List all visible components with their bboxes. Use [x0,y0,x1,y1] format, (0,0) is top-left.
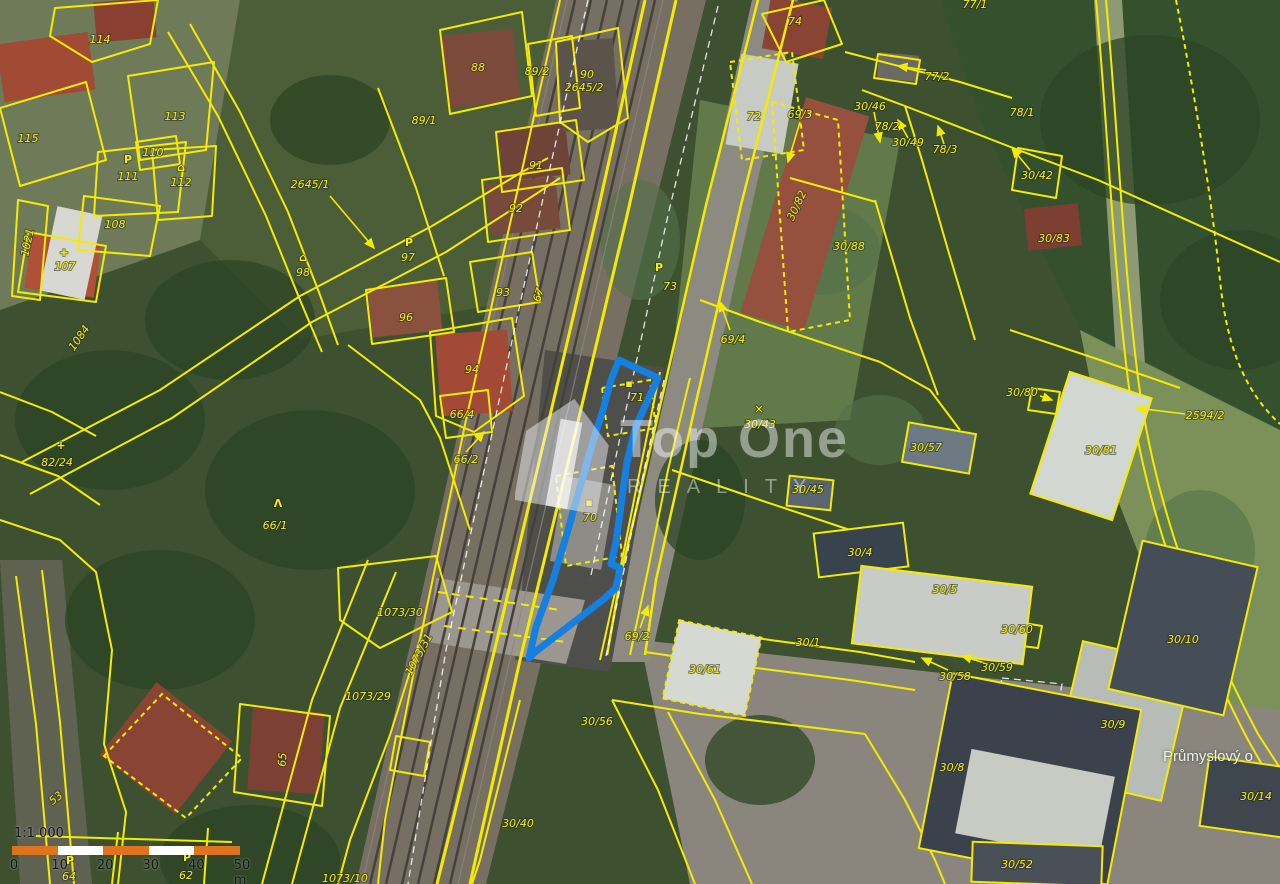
parcel-label: 30/9 [1101,718,1126,731]
parcel-label: 30/58 [939,670,971,683]
parcel-label: 96 [399,311,413,324]
scale-tick-label: 20 [97,858,114,873]
parcel-label: 2645/1 [291,178,330,191]
parcel-label: 30/61 [689,663,721,676]
map-symbol-Λ: Λ [274,497,283,510]
parcel-label: 89/2 [525,65,550,78]
parcel-label: 97 [401,251,415,264]
parcel-label: 30/14 [1240,790,1272,803]
parcel-label: 30/10 [1167,633,1199,646]
area-label: Průmyslový o [1163,748,1253,765]
parcel-label: 30/8 [940,761,965,774]
parcel-label: 74 [788,15,802,28]
parcel-label: 115 [18,132,39,145]
parcel-label: 70 [583,511,597,524]
parcel-label: 92 [509,202,523,215]
parcel-label: 1021 [18,227,37,257]
scale-tick-label: 0 [10,858,18,873]
parcel-label: 114 [90,33,111,46]
parcel-label: 77/2 [925,70,950,83]
parcel-label: 89/1 [412,114,437,127]
parcel-label: 69/3 [788,108,813,121]
parcel-label: 88 [471,61,485,74]
parcel-label: 78/1 [1010,106,1035,119]
parcel-label: 91 [529,159,543,172]
parcel-label: 30/56 [581,715,613,728]
scale-bar-segments [12,846,240,855]
parcel-label: 94 [465,363,479,376]
scale-bar-segment [103,846,149,855]
map-symbol-P: P [124,153,132,166]
parcel-label: 113 [165,110,186,123]
parcel-label: 112 [171,176,192,189]
parcel-label: 30/42 [1021,169,1053,182]
parcel-label: 30/49 [892,136,924,149]
map-symbol-▪: ▪ [585,496,592,509]
scale-bar-segment [194,846,240,855]
parcel-label: 30/4 [848,546,873,559]
parcel-label: 65 [275,752,289,767]
parcel-label: 30/57 [910,441,942,454]
parcel-label: 30/80 [1006,386,1038,399]
parcel-label: 98 [296,266,310,279]
cadastral-map-viewport[interactable]: 11411511311011111210810710218889/2902645… [0,0,1280,884]
map-symbol-+: + [59,246,68,259]
parcel-label: 1073/30 [377,606,423,619]
parcel-label: 1073/10 [322,872,368,884]
scale-tick-label: 30 [143,858,160,873]
scale-bar-ticks: 01020304050 m [12,858,252,876]
parcel-label: 1073/31 [402,631,435,677]
parcel-label: 30/83 [1038,232,1070,245]
map-symbol-✕: ✕ [754,403,763,416]
map-symbol-+: + [56,439,65,452]
parcel-label: 82/24 [41,456,73,469]
parcel-label: 1073/29 [345,690,391,703]
parcel-label: 30/59 [981,661,1013,674]
parcel-label: 30/88 [833,240,865,253]
outlined-buildings [663,372,1280,884]
parcel-label: 73 [663,280,677,293]
scale-bar-segment [58,846,104,855]
map-symbol-P: P [405,236,413,249]
parcel-label: 66/1 [263,519,288,532]
map-symbol-▪: ▪ [625,377,632,390]
parcel-label: 30/5 [933,583,958,596]
parcel-label: 66/4 [450,408,475,421]
parcel-label: 53 [46,789,65,808]
parcel-label: 78/3 [933,143,958,156]
parcel-label: 30/81 [1085,444,1117,457]
parcel-label: 2594/2 [1186,409,1225,422]
parcel-label: 72 [747,110,761,123]
parcel-label: 66/2 [454,453,479,466]
parcel-label: 69/2 [625,630,650,643]
parcel-label: 77/1 [963,0,988,11]
parcel-label: 108 [105,218,126,231]
parcel-label: 90 [580,68,594,81]
scale-bar-segment [149,846,195,855]
parcel-label: 30/46 [854,100,886,113]
cadastre-overlay-layer: 11411511311011111210810710218889/2902645… [0,0,1280,884]
map-symbol-⌂: ⌂ [299,251,307,264]
parcel-label: 110 [143,146,164,159]
scale-bar: 1:1 000 01020304050 m [8,824,278,880]
parcel-label: 93 [496,286,510,299]
parcel-label: 71 [630,391,644,404]
parcel-label: 30/82 [784,188,809,222]
parcel-label: 30/60 [1001,623,1033,636]
parcel-label: 1084 [66,323,93,353]
parcel-label: 2645/2 [565,81,604,94]
map-symbol-⌂: ⌂ [177,161,185,174]
parcel-label: 69/4 [721,333,746,346]
parcel-label: 111 [118,170,139,183]
parcel-label: 30/40 [502,817,534,830]
parcel-label: 30/43 [744,418,776,431]
parcel-label: 30/52 [1001,858,1033,871]
parcel-label: 30/45 [792,483,824,496]
scale-tick-label: 40 [188,858,205,873]
scale-tick-label: 50 m [234,858,251,884]
map-symbol-P: P [655,261,663,274]
parcel-label: 30/1 [796,636,821,649]
parcel-label: 67 [530,286,547,303]
parcel-label: 78/2 [875,120,900,133]
scale-bar-segment [12,846,58,855]
parcel-label: 107 [55,260,76,273]
scale-ratio-label: 1:1 000 [14,826,64,841]
scale-tick-label: 10 [51,858,68,873]
